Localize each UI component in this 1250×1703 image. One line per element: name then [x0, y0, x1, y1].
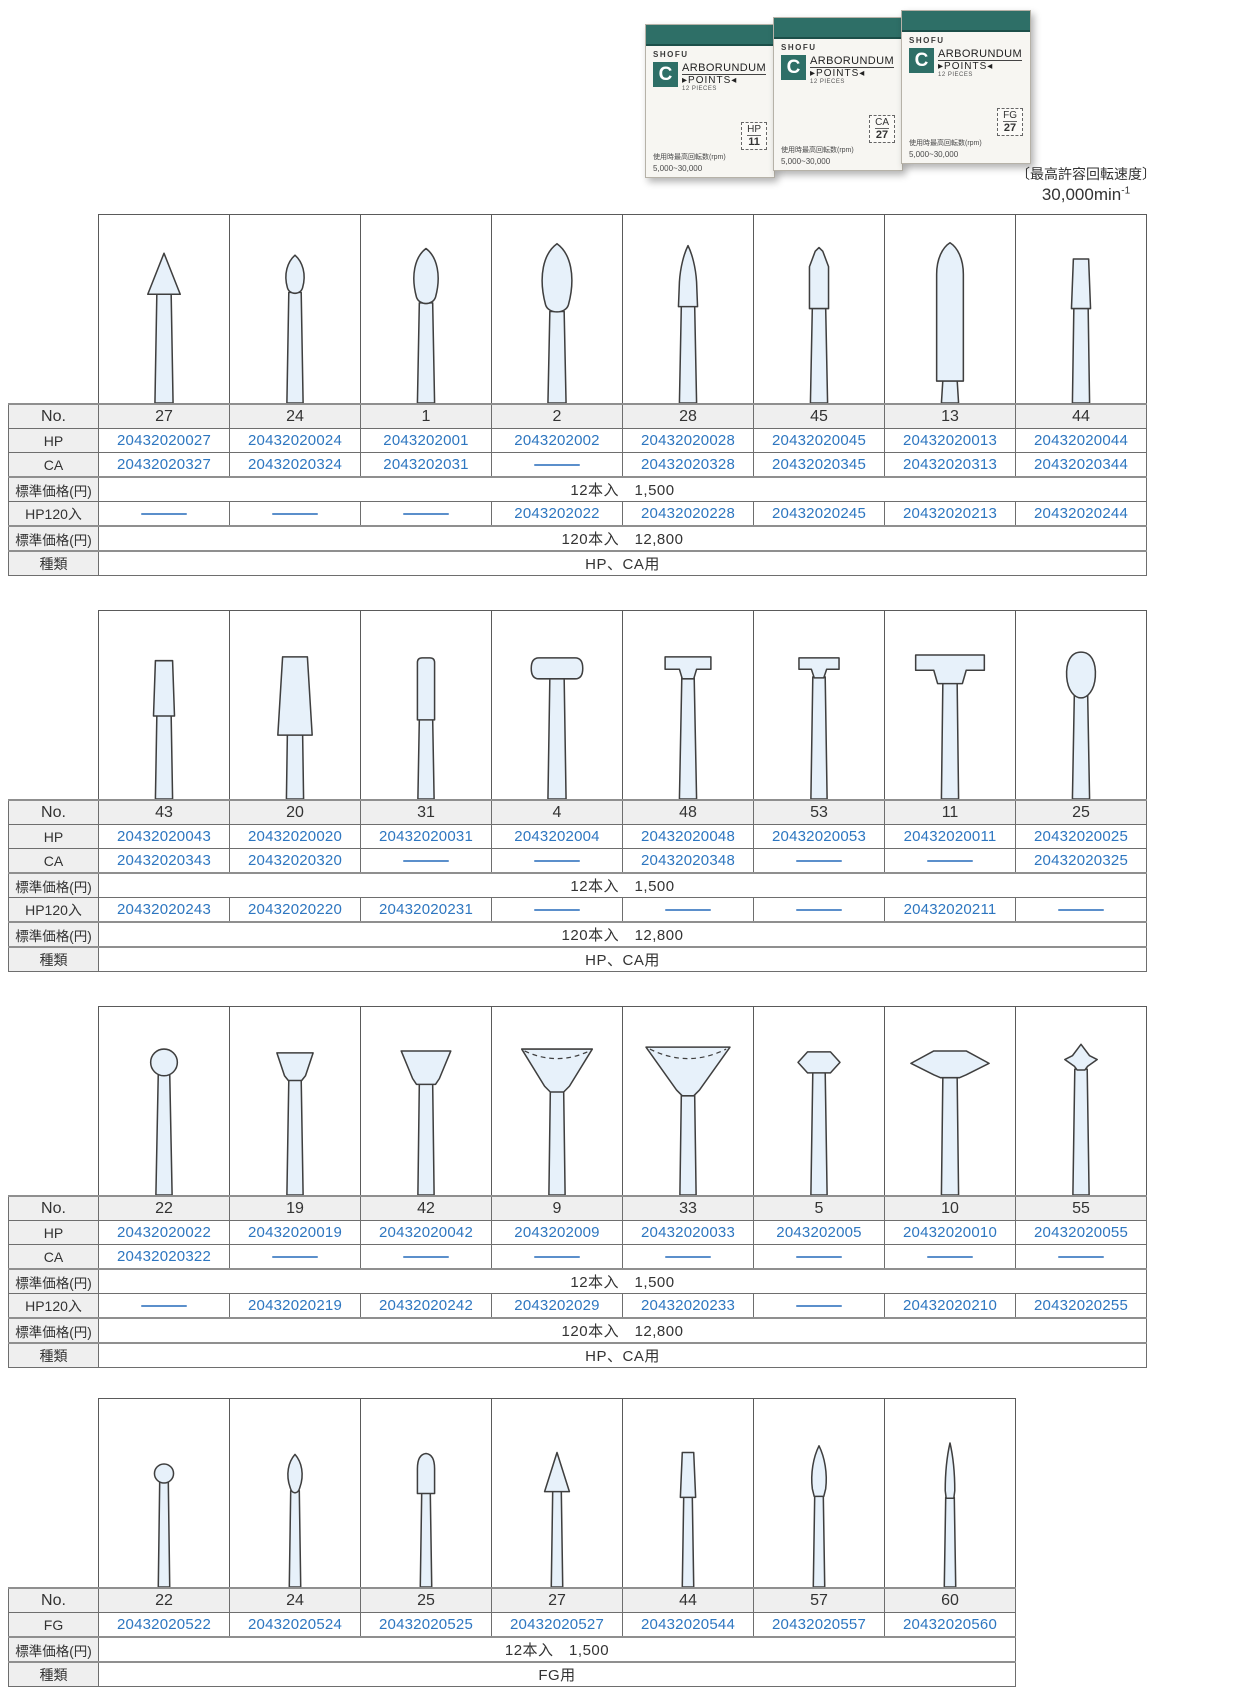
hp120-code: 20432020220: [230, 898, 361, 923]
hp-code-row: HP20432020022204320200192043202004220432…: [9, 1221, 1147, 1245]
box-lid: [902, 11, 1030, 32]
hp-code: 2043202005: [754, 1221, 885, 1245]
point-shape-bullet-round-fg-icon: [361, 1399, 491, 1587]
kind-value: FG用: [99, 1662, 1016, 1687]
hp120-code: 20432020244: [1016, 502, 1147, 527]
ca-code-row: CA20432020322: [9, 1245, 1147, 1270]
no-item-dash: [927, 1256, 973, 1258]
hp120-code-row: HP120入2043202024320432020220204320202312…: [9, 898, 1147, 923]
point-number: 2: [492, 404, 623, 429]
shape-cell-no-19: [230, 1007, 361, 1197]
ca-code: 20432020343: [99, 849, 230, 874]
box-type-code: CA: [875, 117, 889, 128]
ca-code: [492, 849, 623, 874]
price-12-value: 12本入 1,500: [99, 477, 1147, 502]
fg-code-row: FG20432020522204320205242043202052520432…: [9, 1613, 1016, 1638]
point-number: 27: [99, 404, 230, 429]
box-subtitle: ▸POINTS◂: [810, 68, 894, 79]
row-label-kind: 種類: [9, 1662, 99, 1687]
no-item-dash: [403, 1256, 449, 1258]
point-number: 27: [492, 1588, 623, 1613]
shape-cell-no-44: [1016, 215, 1147, 405]
shape-cell-no-25: [361, 1399, 492, 1589]
product-photo: SHOFUCARBORUNDUM▸POINTS◂12 PIECESHP11使用時…: [645, 10, 1045, 182]
shape-cell-no-55: [1016, 1007, 1147, 1197]
row-label-hp120: HP120入: [9, 898, 99, 923]
point-number: 22: [99, 1588, 230, 1613]
hp-code: 20432020031: [361, 825, 492, 849]
shape-cell-no-45: [754, 215, 885, 405]
point-number: 1: [361, 404, 492, 429]
ca-code: 2043202031: [361, 453, 492, 478]
shape-cell-no-27: [99, 215, 230, 405]
point-shape-flame-long-fg-icon: [754, 1399, 884, 1587]
hp120-code: [623, 898, 754, 923]
ca-code: [754, 1245, 885, 1270]
product-box-FG: SHOFUCARBORUNDUM▸POINTS◂12 PIECESFG27使用時…: [901, 10, 1031, 164]
hp120-code: 20432020228: [623, 502, 754, 527]
box-type-code: HP: [747, 124, 761, 135]
price-120-value: 120本入 12,800: [99, 1318, 1147, 1343]
ca-code: 20432020345: [754, 453, 885, 478]
hp120-code: [361, 502, 492, 527]
hp120-code: 20432020243: [99, 898, 230, 923]
row-label-price-12: 標準価格(円): [9, 873, 99, 898]
price-120-value: 120本入 12,800: [99, 526, 1147, 551]
shape-row: [9, 215, 1147, 405]
ca-code: [361, 1245, 492, 1270]
ca-code: [492, 453, 623, 478]
box-type-number: 27: [875, 128, 889, 141]
shape-cell-no-22: [99, 1399, 230, 1589]
row-label-no: No.: [9, 404, 99, 429]
point-shape-bud-large-icon: [492, 215, 622, 403]
box-brand-label: SHOFU: [653, 50, 767, 59]
point-shape-knife-hex-icon: [754, 1007, 884, 1195]
row-label-fg: FG: [9, 1613, 99, 1638]
tables-area: No.27241228451344HP204320200272043202002…: [8, 214, 1250, 1687]
hp-code: 20432020011: [885, 825, 1016, 849]
point-number: 5: [754, 1196, 885, 1221]
point-shape-cylinder-icon: [361, 611, 491, 799]
hp-code: 2043202001: [361, 429, 492, 453]
hp120-code: 20432020255: [1016, 1294, 1147, 1319]
row-label-price-12: 標準価格(円): [9, 477, 99, 502]
point-shape-tee-flat-icon: [623, 611, 753, 799]
hp-code: 20432020045: [754, 429, 885, 453]
no-item-dash: [796, 860, 842, 862]
hp120-code: 20432020211: [885, 898, 1016, 923]
box-face: SHOFUCARBORUNDUM▸POINTS◂12 PIECESHP11使用時…: [646, 46, 774, 180]
shape-row-spacer: [9, 215, 99, 405]
ca-code: [885, 849, 1016, 874]
brand-c-logo-icon: C: [781, 55, 806, 80]
shape-cell-no-22: [99, 1007, 230, 1197]
brand-c-logo-icon: C: [909, 48, 934, 73]
point-number: 13: [885, 404, 1016, 429]
point-shape-cup-small-icon: [230, 1007, 360, 1195]
number-row: No.22194293351055: [9, 1196, 1147, 1221]
price-12-row: 標準価格(円)12本入 1,500: [9, 1269, 1147, 1294]
box-speed-note: 使用時最高回転数(rpm)5,000~30,000: [653, 153, 726, 175]
hp120-code: 20432020245: [754, 502, 885, 527]
point-number: 22: [99, 1196, 230, 1221]
point-shape-cone-fg-icon: [492, 1399, 622, 1587]
point-number: 28: [623, 404, 754, 429]
box-pieces-label: 12 PIECES: [938, 72, 1022, 78]
hp-code: 20432020010: [885, 1221, 1016, 1245]
shape-cell-no-43: [99, 611, 230, 801]
ca-code: 20432020328: [623, 453, 754, 478]
shape-cell-no-10: [885, 1007, 1016, 1197]
shape-cell-no-42: [361, 1007, 492, 1197]
point-shape-cup-hollow-large-icon: [623, 1007, 753, 1195]
hp120-code: [230, 502, 361, 527]
no-item-dash: [141, 1305, 187, 1307]
point-shape-cup-hollow-icon: [492, 1007, 622, 1195]
no-item-dash: [665, 909, 711, 911]
hp-code: 20432020027: [99, 429, 230, 453]
price-120-row: 標準価格(円)120本入 12,800: [9, 1318, 1147, 1343]
price-120-value: 120本入 12,800: [99, 922, 1147, 947]
hp-code: 20432020043: [99, 825, 230, 849]
shape-row-spacer: [9, 1399, 99, 1589]
point-number: 45: [754, 404, 885, 429]
row-label-hp: HP: [9, 1221, 99, 1245]
row-label-hp120: HP120入: [9, 502, 99, 527]
no-item-dash: [534, 909, 580, 911]
box-lid: [774, 18, 902, 39]
max-speed-value: 30,000min-1: [1016, 184, 1156, 205]
box-speed-note: 使用時最高回転数(rpm)5,000~30,000: [781, 146, 854, 168]
row-label-hp: HP: [9, 429, 99, 453]
point-number: 60: [885, 1588, 1016, 1613]
shape-row: [9, 1007, 1147, 1197]
no-item-dash: [534, 464, 580, 466]
ca-code: [885, 1245, 1016, 1270]
no-item-dash: [796, 909, 842, 911]
hp120-code: [99, 502, 230, 527]
fg-code: 20432020544: [623, 1613, 754, 1638]
number-row: No.432031448531125: [9, 800, 1147, 825]
hp120-code: 2043202022: [492, 502, 623, 527]
box-face: SHOFUCARBORUNDUM▸POINTS◂12 PIECESCA27使用時…: [774, 39, 902, 173]
product-box-CA: SHOFUCARBORUNDUM▸POINTS◂12 PIECESCA27使用時…: [773, 17, 903, 171]
no-item-dash: [1058, 909, 1104, 911]
shape-cell-no-20: [230, 611, 361, 801]
hp-code: 20432020020: [230, 825, 361, 849]
fg-code: 20432020524: [230, 1613, 361, 1638]
catalog-page: SHOFUCARBORUNDUM▸POINTS◂12 PIECESHP11使用時…: [0, 0, 1250, 1703]
point-number: 25: [1016, 800, 1147, 825]
fg-code: 20432020560: [885, 1613, 1016, 1638]
number-row: No.27241228451344: [9, 404, 1147, 429]
point-shape-taper-flat-icon: [99, 611, 229, 799]
hp-code: 20432020048: [623, 825, 754, 849]
box-type-number: 11: [747, 135, 761, 148]
box-lid: [646, 25, 774, 46]
brand-c-logo-icon: C: [653, 62, 678, 87]
price-12-row: 標準価格(円)12本入 1,500: [9, 873, 1147, 898]
shape-row-spacer: [9, 1007, 99, 1197]
fg-code: 20432020525: [361, 1613, 492, 1638]
hp-code: 20432020044: [1016, 429, 1147, 453]
point-shape-taper-flat-fg-icon: [623, 1399, 753, 1587]
kind-row: 種類FG用: [9, 1662, 1016, 1687]
box-pieces-label: 12 PIECES: [682, 86, 766, 92]
point-shape-torpedo-icon: [885, 215, 1015, 403]
point-number: 44: [623, 1588, 754, 1613]
hp-code: 2043202004: [492, 825, 623, 849]
point-shape-needle-fg-icon: [885, 1399, 1015, 1587]
box-brand-label: SHOFU: [781, 43, 895, 52]
kind-row: 種類HP、CA用: [9, 551, 1147, 576]
point-shape-taper-point-icon: [623, 215, 753, 403]
row-label-price-12: 標準価格(円): [9, 1637, 99, 1662]
point-shape-cup-icon: [361, 1007, 491, 1195]
row-label-price-120: 標準価格(円): [9, 1318, 99, 1343]
shape-cell-no-9: [492, 1007, 623, 1197]
shape-row: [9, 611, 1147, 801]
shape-cell-no-4: [492, 611, 623, 801]
no-item-dash: [1058, 1256, 1104, 1258]
hp120-code: [492, 898, 623, 923]
point-number: 42: [361, 1196, 492, 1221]
fg-code: 20432020557: [754, 1613, 885, 1638]
no-item-dash: [927, 860, 973, 862]
ca-code: [754, 849, 885, 874]
points-table-2: No.432031448531125HP20432020043204320200…: [8, 610, 1147, 972]
ca-code: 20432020327: [99, 453, 230, 478]
box-brand-label: SHOFU: [909, 36, 1023, 45]
product-box-HP: SHOFUCARBORUNDUM▸POINTS◂12 PIECESHP11使用時…: [645, 24, 775, 178]
point-number: 48: [623, 800, 754, 825]
shape-cell-no-5: [754, 1007, 885, 1197]
point-number: 11: [885, 800, 1016, 825]
ca-code: 20432020325: [1016, 849, 1147, 874]
kind-row: 種類HP、CA用: [9, 947, 1147, 972]
no-item-dash: [796, 1256, 842, 1258]
price-12-value: 12本入 1,500: [99, 1269, 1147, 1294]
point-number: 43: [99, 800, 230, 825]
row-label-ca: CA: [9, 1245, 99, 1270]
no-item-dash: [534, 1256, 580, 1258]
point-shape-bud-icon: [361, 215, 491, 403]
hp-code: 20432020022: [99, 1221, 230, 1245]
box-type-code: FG: [1003, 110, 1017, 121]
hp120-code: 20432020242: [361, 1294, 492, 1319]
shape-cell-no-27: [492, 1399, 623, 1589]
shape-cell-no-48: [623, 611, 754, 801]
ca-code: [361, 849, 492, 874]
point-number: 10: [885, 1196, 1016, 1221]
shape-cell-no-13: [885, 215, 1016, 405]
hp-code: 20432020053: [754, 825, 885, 849]
hp120-code: 20432020210: [885, 1294, 1016, 1319]
fg-code: 20432020522: [99, 1613, 230, 1638]
ca-code: [230, 1245, 361, 1270]
shape-cell-no-2: [492, 215, 623, 405]
point-shape-flame-fg-icon: [230, 1399, 360, 1587]
point-shape-tee-flat-small-icon: [754, 611, 884, 799]
hp-code: 20432020028: [623, 429, 754, 453]
shape-cell-no-44: [623, 1399, 754, 1589]
row-label-price-12: 標準価格(円): [9, 1269, 99, 1294]
row-label-no: No.: [9, 800, 99, 825]
hp-code: 2043202002: [492, 429, 623, 453]
fg-code: 20432020527: [492, 1613, 623, 1638]
kind-row: 種類HP、CA用: [9, 1343, 1147, 1368]
box-type-badge: FG27: [997, 108, 1023, 136]
shape-row-spacer: [9, 611, 99, 801]
point-number: 9: [492, 1196, 623, 1221]
ca-code: 20432020322: [99, 1245, 230, 1270]
price-120-row: 標準価格(円)120本入 12,800: [9, 526, 1147, 551]
row-label-no: No.: [9, 1588, 99, 1613]
ca-code-row: CA20432020343204320203202043202034820432…: [9, 849, 1147, 874]
point-number: 24: [230, 404, 361, 429]
hp120-code: 20432020231: [361, 898, 492, 923]
point-number: 20: [230, 800, 361, 825]
ca-code: 20432020313: [885, 453, 1016, 478]
shape-cell-no-53: [754, 611, 885, 801]
no-item-dash: [534, 860, 580, 862]
point-shape-arrow-icon: [1016, 1007, 1146, 1195]
hp-code: 20432020042: [361, 1221, 492, 1245]
point-shape-tee-wide-icon: [885, 611, 1015, 799]
hp120-code-row: HP120入2043202021920432020242204320202920…: [9, 1294, 1147, 1319]
no-item-dash: [665, 1256, 711, 1258]
point-shape-knife-wide-icon: [885, 1007, 1015, 1195]
kind-value: HP、CA用: [99, 551, 1147, 576]
box-subtitle: ▸POINTS◂: [682, 75, 766, 86]
point-shape-ball-icon: [99, 1007, 229, 1195]
points-table-1: No.27241228451344HP204320200272043202002…: [8, 214, 1147, 576]
hp-code: 20432020025: [1016, 825, 1147, 849]
shape-cell-no-24: [230, 215, 361, 405]
box-title: ARBORUNDUM: [682, 62, 766, 75]
max-speed-note: 〔最高許容回転速度〕 30,000min-1: [1016, 166, 1156, 205]
hp-code: 20432020033: [623, 1221, 754, 1245]
row-label-hp120: HP120入: [9, 1294, 99, 1319]
no-item-dash: [272, 513, 318, 515]
point-shape-taper-flat-large-icon: [230, 611, 360, 799]
shape-cell-no-25: [1016, 611, 1147, 801]
point-number: 55: [1016, 1196, 1147, 1221]
hp120-code: 2043202029: [492, 1294, 623, 1319]
shape-cell-no-60: [885, 1399, 1016, 1589]
ca-code: [623, 1245, 754, 1270]
hp-code-row: HP20432020027204320200242043202001204320…: [9, 429, 1147, 453]
ca-code: [1016, 1245, 1147, 1270]
ca-code: 20432020324: [230, 453, 361, 478]
point-number: 57: [754, 1588, 885, 1613]
hp-code-row: HP20432020043204320200202043202003120432…: [9, 825, 1147, 849]
shape-cell-no-33: [623, 1007, 754, 1197]
point-shape-taper-flat-small-icon: [1016, 215, 1146, 403]
hp120-code: 20432020213: [885, 502, 1016, 527]
row-label-price-120: 標準価格(円): [9, 922, 99, 947]
ca-code: [492, 1245, 623, 1270]
row-label-ca: CA: [9, 453, 99, 478]
box-face: SHOFUCARBORUNDUM▸POINTS◂12 PIECESFG27使用時…: [902, 32, 1030, 166]
number-row: No.22242527445760: [9, 1588, 1016, 1613]
point-number: 53: [754, 800, 885, 825]
point-shape-egg-icon: [1016, 611, 1146, 799]
hp-code: 20432020024: [230, 429, 361, 453]
price-12-value: 12本入 1,500: [99, 1637, 1016, 1662]
point-number: 33: [623, 1196, 754, 1221]
hp120-code: [754, 1294, 885, 1319]
hp-code: 20432020055: [1016, 1221, 1147, 1245]
max-speed-caption: 〔最高許容回転速度〕: [1016, 166, 1156, 184]
price-12-row: 標準価格(円)12本入 1,500: [9, 477, 1147, 502]
shape-cell-no-57: [754, 1399, 885, 1589]
point-shape-cone-icon: [99, 215, 229, 403]
box-title: ARBORUNDUM: [938, 48, 1022, 61]
point-number: 19: [230, 1196, 361, 1221]
point-number: 44: [1016, 404, 1147, 429]
no-item-dash: [403, 860, 449, 862]
box-speed-note: 使用時最高回転数(rpm)5,000~30,000: [909, 139, 982, 161]
point-number: 4: [492, 800, 623, 825]
price-12-value: 12本入 1,500: [99, 873, 1147, 898]
shape-cell-no-24: [230, 1399, 361, 1589]
box-type-badge: CA27: [869, 115, 895, 143]
hp120-code-row: HP120入2043202022204320202282043202024520…: [9, 502, 1147, 527]
kind-value: HP、CA用: [99, 947, 1147, 972]
box-pieces-label: 12 PIECES: [810, 79, 894, 85]
kind-value: HP、CA用: [99, 1343, 1147, 1368]
no-item-dash: [796, 1305, 842, 1307]
row-label-kind: 種類: [9, 947, 99, 972]
no-item-dash: [141, 513, 187, 515]
box-title: ARBORUNDUM: [810, 55, 894, 68]
point-number: 24: [230, 1588, 361, 1613]
points-table-4: No.22242527445760FG204320205222043202052…: [8, 1398, 1016, 1687]
shape-cell-no-11: [885, 611, 1016, 801]
box-type-badge: HP11: [741, 122, 767, 150]
no-item-dash: [403, 513, 449, 515]
no-item-dash: [272, 1256, 318, 1258]
box-type-number: 27: [1003, 121, 1017, 134]
row-label-kind: 種類: [9, 551, 99, 576]
ca-code-row: CA20432020327204320203242043202031204320…: [9, 453, 1147, 478]
box-subtitle: ▸POINTS◂: [938, 61, 1022, 72]
ca-code: 20432020348: [623, 849, 754, 874]
points-table-3: No.22194293351055HP204320200222043202001…: [8, 1006, 1147, 1368]
ca-code: 20432020344: [1016, 453, 1147, 478]
page-header: SHOFUCARBORUNDUM▸POINTS◂12 PIECESHP11使用時…: [0, 0, 1250, 212]
point-shape-bullet-icon: [754, 215, 884, 403]
row-label-no: No.: [9, 1196, 99, 1221]
hp120-code: [754, 898, 885, 923]
point-number: 25: [361, 1588, 492, 1613]
price-120-row: 標準価格(円)120本入 12,800: [9, 922, 1147, 947]
hp120-code: [99, 1294, 230, 1319]
hp120-code: 20432020219: [230, 1294, 361, 1319]
row-label-ca: CA: [9, 849, 99, 874]
point-number: 31: [361, 800, 492, 825]
hp-code: 20432020013: [885, 429, 1016, 453]
row-label-kind: 種類: [9, 1343, 99, 1368]
point-shape-flame-small-icon: [230, 215, 360, 403]
hp120-code: [1016, 898, 1147, 923]
shape-cell-no-31: [361, 611, 492, 801]
hp-code: 2043202009: [492, 1221, 623, 1245]
price-12-row: 標準価格(円)12本入 1,500: [9, 1637, 1016, 1662]
shape-row: [9, 1399, 1016, 1589]
